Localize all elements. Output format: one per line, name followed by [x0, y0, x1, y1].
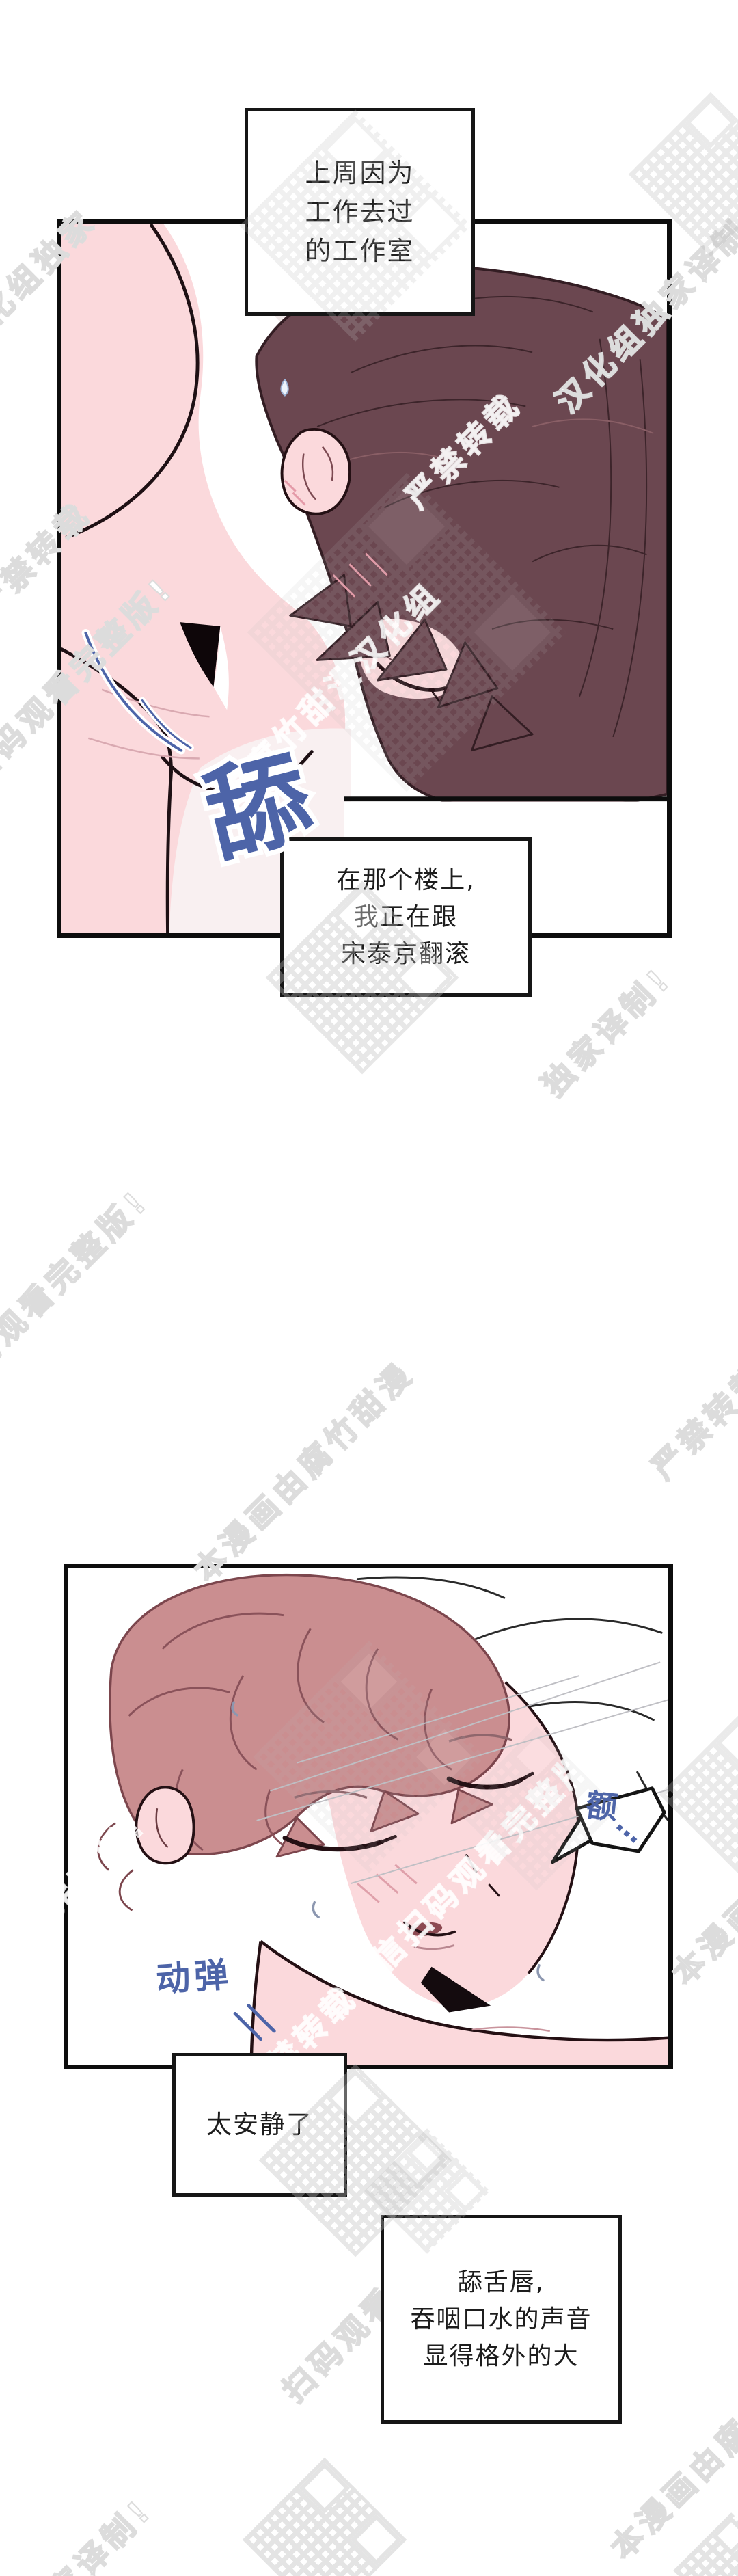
watermark-text: 本漫画由腐竹甜漫	[182, 1350, 423, 1590]
watermark-text: 独家译制!	[12, 2486, 162, 2576]
ear	[282, 429, 350, 514]
watermark-text: 独家译制!	[531, 954, 681, 1105]
qr-code-watermark	[243, 2458, 407, 2576]
qr-code-watermark	[673, 2512, 738, 2576]
watermark-text: 严禁转载	[640, 1352, 738, 1488]
narration-box-swallow: 舔舌唇, 吞咽口水的声音 显得格外的大	[381, 2215, 622, 2424]
watermark-text: 扫码观看完整版!	[0, 1177, 158, 1406]
ear-2	[136, 1787, 193, 1863]
webtoon-page: 汉化组独家译制! 严禁转载 微信扫码观看完整版! 由腐竹甜漫汉化组 严禁转载 独…	[0, 0, 738, 2576]
narration-text: 舔舌唇, 吞咽口水的声音 显得格外的大	[410, 2264, 592, 2375]
